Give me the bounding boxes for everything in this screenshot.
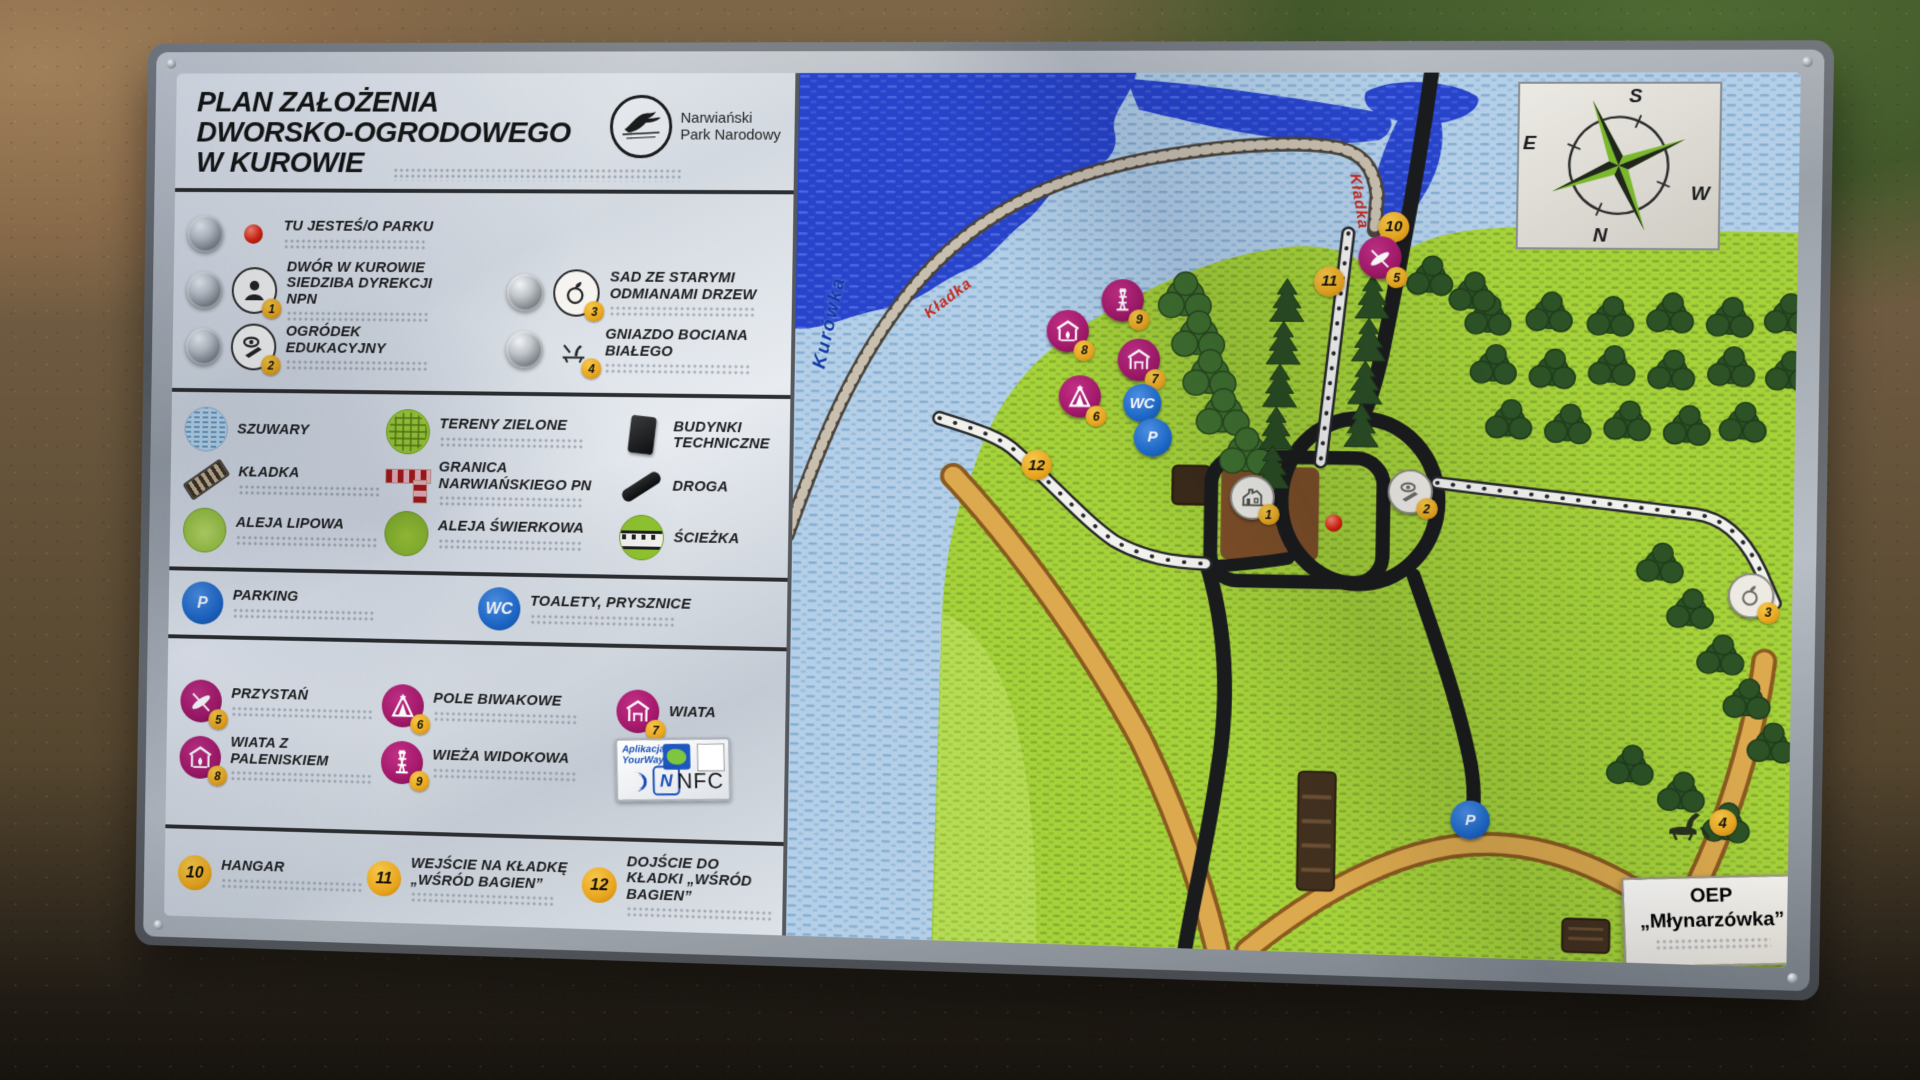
legend-item: TU JESTEŚ/O PARKU (187, 208, 783, 262)
poi-gniazdo-icon: 4 (552, 329, 595, 373)
legend-item: 10HANGAR (177, 841, 363, 909)
kladka-icon (182, 458, 230, 500)
legend-label: DWÓR W KUROWIE SIEDZIBA DYREKCJI NPN (286, 259, 449, 323)
braille-dots (626, 906, 773, 923)
park-name: Narwiański Park Narodowy (680, 110, 781, 144)
braille-dots (393, 167, 683, 182)
braille-dots (230, 770, 372, 785)
number-badge: 1 (262, 298, 282, 319)
legend-item: SZUWARY (184, 404, 382, 457)
wc-icon: WC (478, 587, 521, 631)
legend-label: HANGAR (221, 858, 363, 893)
legend-section-s4: 5PRZYSTAŃ6POLE BIWAKOWE7WIATA8WIATA Z PA… (165, 638, 786, 846)
legend-label: ŚCIEŻKA (674, 530, 740, 547)
number-badge: 3 (584, 301, 605, 322)
legend-section-s1: TU JESTEŚ/O PARKU1DWÓR W KUROWIE SIEDZIB… (172, 192, 794, 399)
braille-dots (438, 495, 583, 509)
braille-dots (530, 613, 676, 628)
braille-dots (609, 305, 755, 318)
park-name-line-2: Park Narodowy (680, 127, 781, 144)
number-badge: 8 (207, 765, 227, 786)
wiata-icon: 7 (616, 689, 659, 733)
number-badge: 2 (261, 355, 281, 376)
braille-dots (1655, 935, 1771, 950)
number-badge: 1 (1258, 504, 1280, 526)
you-are-here-dot (1325, 515, 1343, 533)
legend-section-s2: SZUWARYTERENY ZIELONEBUDYNKI TECHNICZNEK… (169, 392, 790, 582)
map-markers: 105119876WCP121234P (786, 72, 1801, 968)
map-badge-12: 12 (1021, 450, 1052, 481)
number-badge: 6 (1086, 406, 1107, 427)
badge-only-icon: 12 (582, 867, 617, 904)
legend-item: 4GNIAZDO BOCIANA BIAŁEGO (506, 324, 782, 378)
oep-label: OEP „Młynarzówka” (1621, 873, 1801, 967)
legend-label: PARKING (232, 588, 375, 622)
przystan-icon: 5 (180, 679, 222, 723)
map-poi-wiata-paleniskiem: 8 (1047, 310, 1090, 353)
screw-icon (154, 920, 164, 930)
legend-sections: TU JESTEŚ/O PARKU1DWÓR W KUROWIE SIEDZIB… (164, 192, 794, 935)
legend-label: ALEJA ŚWIERKOWA (438, 519, 584, 552)
legend-item: GRANICA NARWIAŃSKIEGO PN (385, 457, 617, 512)
granica-icon (385, 463, 430, 503)
legend-label: TERENY ZIELONE (439, 417, 584, 450)
legend-label: DROGA (672, 479, 728, 496)
braille-dots (438, 538, 583, 552)
tactile-audio-button[interactable] (506, 331, 543, 369)
number-badge: 5 (1386, 267, 1408, 289)
information-board: PLAN ZAŁOŻENIA DWORSKO-OGRODOWEGO W KURO… (135, 40, 1835, 1001)
legend-item: TERENY ZIELONE (386, 406, 618, 460)
poi-sad-icon: 3 (553, 269, 600, 317)
budynki-icon (627, 415, 657, 455)
eagle-icon (610, 95, 673, 158)
map-poi-map-ogrodek: 2 (1387, 469, 1433, 514)
nfc-plaque: AplikacjaYourWayNNFC (615, 737, 731, 801)
legend-item: 5PRZYSTAŃ (180, 675, 378, 730)
legend-item: KŁADKA (183, 454, 381, 508)
number-badge: 2 (1415, 498, 1437, 520)
map-poi-map-sad: 3 (1727, 572, 1774, 618)
tactile-map: S E W N KurówkaKładkaKładka 105119876WCP… (786, 72, 1801, 968)
legend-label: WIATA (669, 704, 716, 721)
legend-item: ALEJA ŚWIERKOWA (384, 508, 616, 563)
number-badge: 6 (410, 714, 430, 735)
poi-ogrodek-icon: 2 (231, 324, 277, 371)
parking-icon: P (182, 581, 224, 625)
map-poi-gniazdo: 4 (1665, 802, 1737, 843)
braille-dots (283, 238, 426, 251)
aleja-lipowa-icon (183, 507, 227, 552)
icon-glyph: WC (485, 599, 513, 619)
braille-dots (286, 311, 429, 324)
szuwary-icon (184, 406, 228, 451)
legend-label: WEJŚCIE NA KŁADKĘ „WŚRÓD BAGIEN” (410, 856, 574, 908)
legend-item: 3SAD ZE STARYMI ODMIANAMI DRZEW (507, 261, 783, 327)
legend-label: TU JESTEŚ/O PARKU (283, 219, 433, 251)
tactile-audio-button[interactable] (187, 215, 223, 252)
oep-line-1: OEP (1632, 882, 1791, 910)
legend-label: SZUWARY (237, 421, 309, 438)
braille-dots (605, 363, 751, 376)
legend-label: DOJŚCIE DO KŁADKI „WŚRÓD BAGIEN” (626, 854, 773, 922)
tactile-audio-button[interactable] (186, 272, 222, 309)
legend-label: POLE BIWAKOWE (433, 691, 578, 725)
droga-icon (620, 469, 663, 503)
legend-item: DROGA (620, 460, 780, 514)
map-marker-wc: WC (1123, 384, 1162, 423)
tactile-audio-button[interactable] (507, 274, 544, 312)
badge-only-icon: 10 (178, 855, 212, 891)
braille-dots (221, 877, 363, 893)
legend-label: WIEŻA WIDOKOWA (432, 748, 577, 783)
braille-dots (433, 710, 578, 725)
legend-item: 12DOJŚCIE DO KŁADKI „WŚRÓD BAGIEN” (581, 853, 773, 923)
wieza-icon: 9 (381, 741, 424, 785)
legend-item: 9WIEŻA WIDOKOWA (380, 731, 612, 800)
map-poi-wiata: 7 (1117, 338, 1160, 381)
map-poi-wieza: 9 (1101, 279, 1144, 322)
qr-code-icon (697, 743, 725, 771)
braille-dots (439, 436, 584, 450)
legend-item: PPARKING (182, 577, 475, 634)
park-name-line-1: Narwiański (680, 110, 781, 127)
legend-item: AplikacjaYourWayNNFC (615, 737, 775, 804)
badge-only-icon: 11 (367, 860, 402, 896)
park-logo: Narwiański Park Narodowy (610, 95, 781, 159)
map-marker-p: P (1133, 418, 1172, 457)
pole-biwakowe-icon: 6 (381, 684, 424, 728)
aleja-swierkowa-icon (384, 511, 429, 557)
number-badge: 8 (1074, 340, 1095, 361)
legend-label: SAD ZE STARYMI ODMIANAMI DRZEW (609, 270, 776, 319)
legend-item: 7WIATA (616, 685, 776, 740)
braille-dots (432, 767, 576, 783)
wiata-paleniskiem-icon: 8 (179, 735, 221, 779)
legend-label: BUDYNKI TECHNICZNE (673, 419, 780, 453)
number-badge: 4 (1709, 809, 1737, 836)
braille-dots (231, 705, 373, 720)
poi-dwor-icon: 1 (231, 267, 277, 314)
legend-label: KŁADKA (238, 465, 381, 498)
braille-dots (410, 891, 554, 907)
sciezka-icon (619, 515, 664, 561)
braille-dots (238, 484, 380, 498)
legend-panel: PLAN ZAŁOŻENIA DWORSKO-OGRODOWEGO W KURO… (164, 73, 799, 935)
screw-icon (1787, 973, 1798, 984)
tereny-zielone-icon (386, 409, 431, 455)
icon-glyph: P (197, 593, 208, 613)
legend-item: 6POLE BIWAKOWE (381, 680, 613, 737)
legend-item: 1DWÓR W KUROWIE SIEDZIBA DYREKCJI NPN (186, 259, 504, 324)
you-are-here-icon (244, 224, 263, 244)
legend-item: 2OGRÓDEK EDUKACYJNY (185, 321, 503, 375)
legend-section-s5: 10HANGAR11WEJŚCIE NA KŁADKĘ „WŚRÓD BAGIE… (164, 828, 783, 935)
legend-item: BUDYNKI TECHNICZNE (620, 409, 780, 463)
legend-label: PRZYSTAŃ (231, 686, 374, 720)
map-poi-map-dwor: 1 (1229, 475, 1275, 520)
legend-item: 11WEJŚCIE NA KŁADKĘ „WŚRÓD BAGIEN” (366, 846, 578, 916)
number-badge: 9 (409, 771, 429, 792)
legend-label: GRANICA NARWIAŃSKIEGO PN (438, 460, 602, 510)
title-block: PLAN ZAŁOŻENIA DWORSKO-OGRODOWEGO W KURO… (175, 73, 795, 194)
legend-label: GNIAZDO BOCIANA BIAŁEGO (605, 327, 772, 376)
legend-item: ŚCIEŻKA (619, 512, 779, 566)
legend-label: OGRÓDEK EDUKACYJNY (285, 324, 448, 373)
legend-item: WCTOALETY, PRYSZNICE (478, 583, 778, 640)
number-badge: 3 (1757, 602, 1780, 624)
board-frame-inner: PLAN ZAŁOŻENIA DWORSKO-OGRODOWEGO W KURO… (143, 50, 1824, 992)
legend-label: WIATA Z PALENISKIEM (230, 735, 377, 786)
legend-label: ALEJA LIPOWA (235, 515, 378, 548)
map-poi-pole-biwakowe: 6 (1059, 375, 1102, 418)
legend-item: ALEJA LIPOWA (183, 505, 381, 559)
legend-label: TOALETY, PRYSZNICE (530, 594, 691, 628)
board-face: PLAN ZAŁOŻENIA DWORSKO-OGRODOWEGO W KURO… (164, 72, 1801, 968)
tactile-audio-button[interactable] (186, 328, 222, 365)
map-poi-przystan: 5 (1358, 236, 1402, 279)
braille-dots (285, 359, 428, 372)
nfc-waves-icon (623, 771, 647, 793)
legend-item: 8WIATA Z PALENISKIEM (179, 726, 377, 793)
oep-line-2: „Młynarzówka” (1633, 906, 1792, 934)
number-badge: 9 (1129, 309, 1151, 330)
map-badge-11: 11 (1314, 266, 1345, 297)
map-marker-p: P (1450, 801, 1490, 841)
braille-dots (232, 607, 374, 622)
number-badge: 4 (581, 358, 602, 379)
nfc-label: NFC (677, 768, 725, 794)
braille-dots (235, 534, 377, 548)
